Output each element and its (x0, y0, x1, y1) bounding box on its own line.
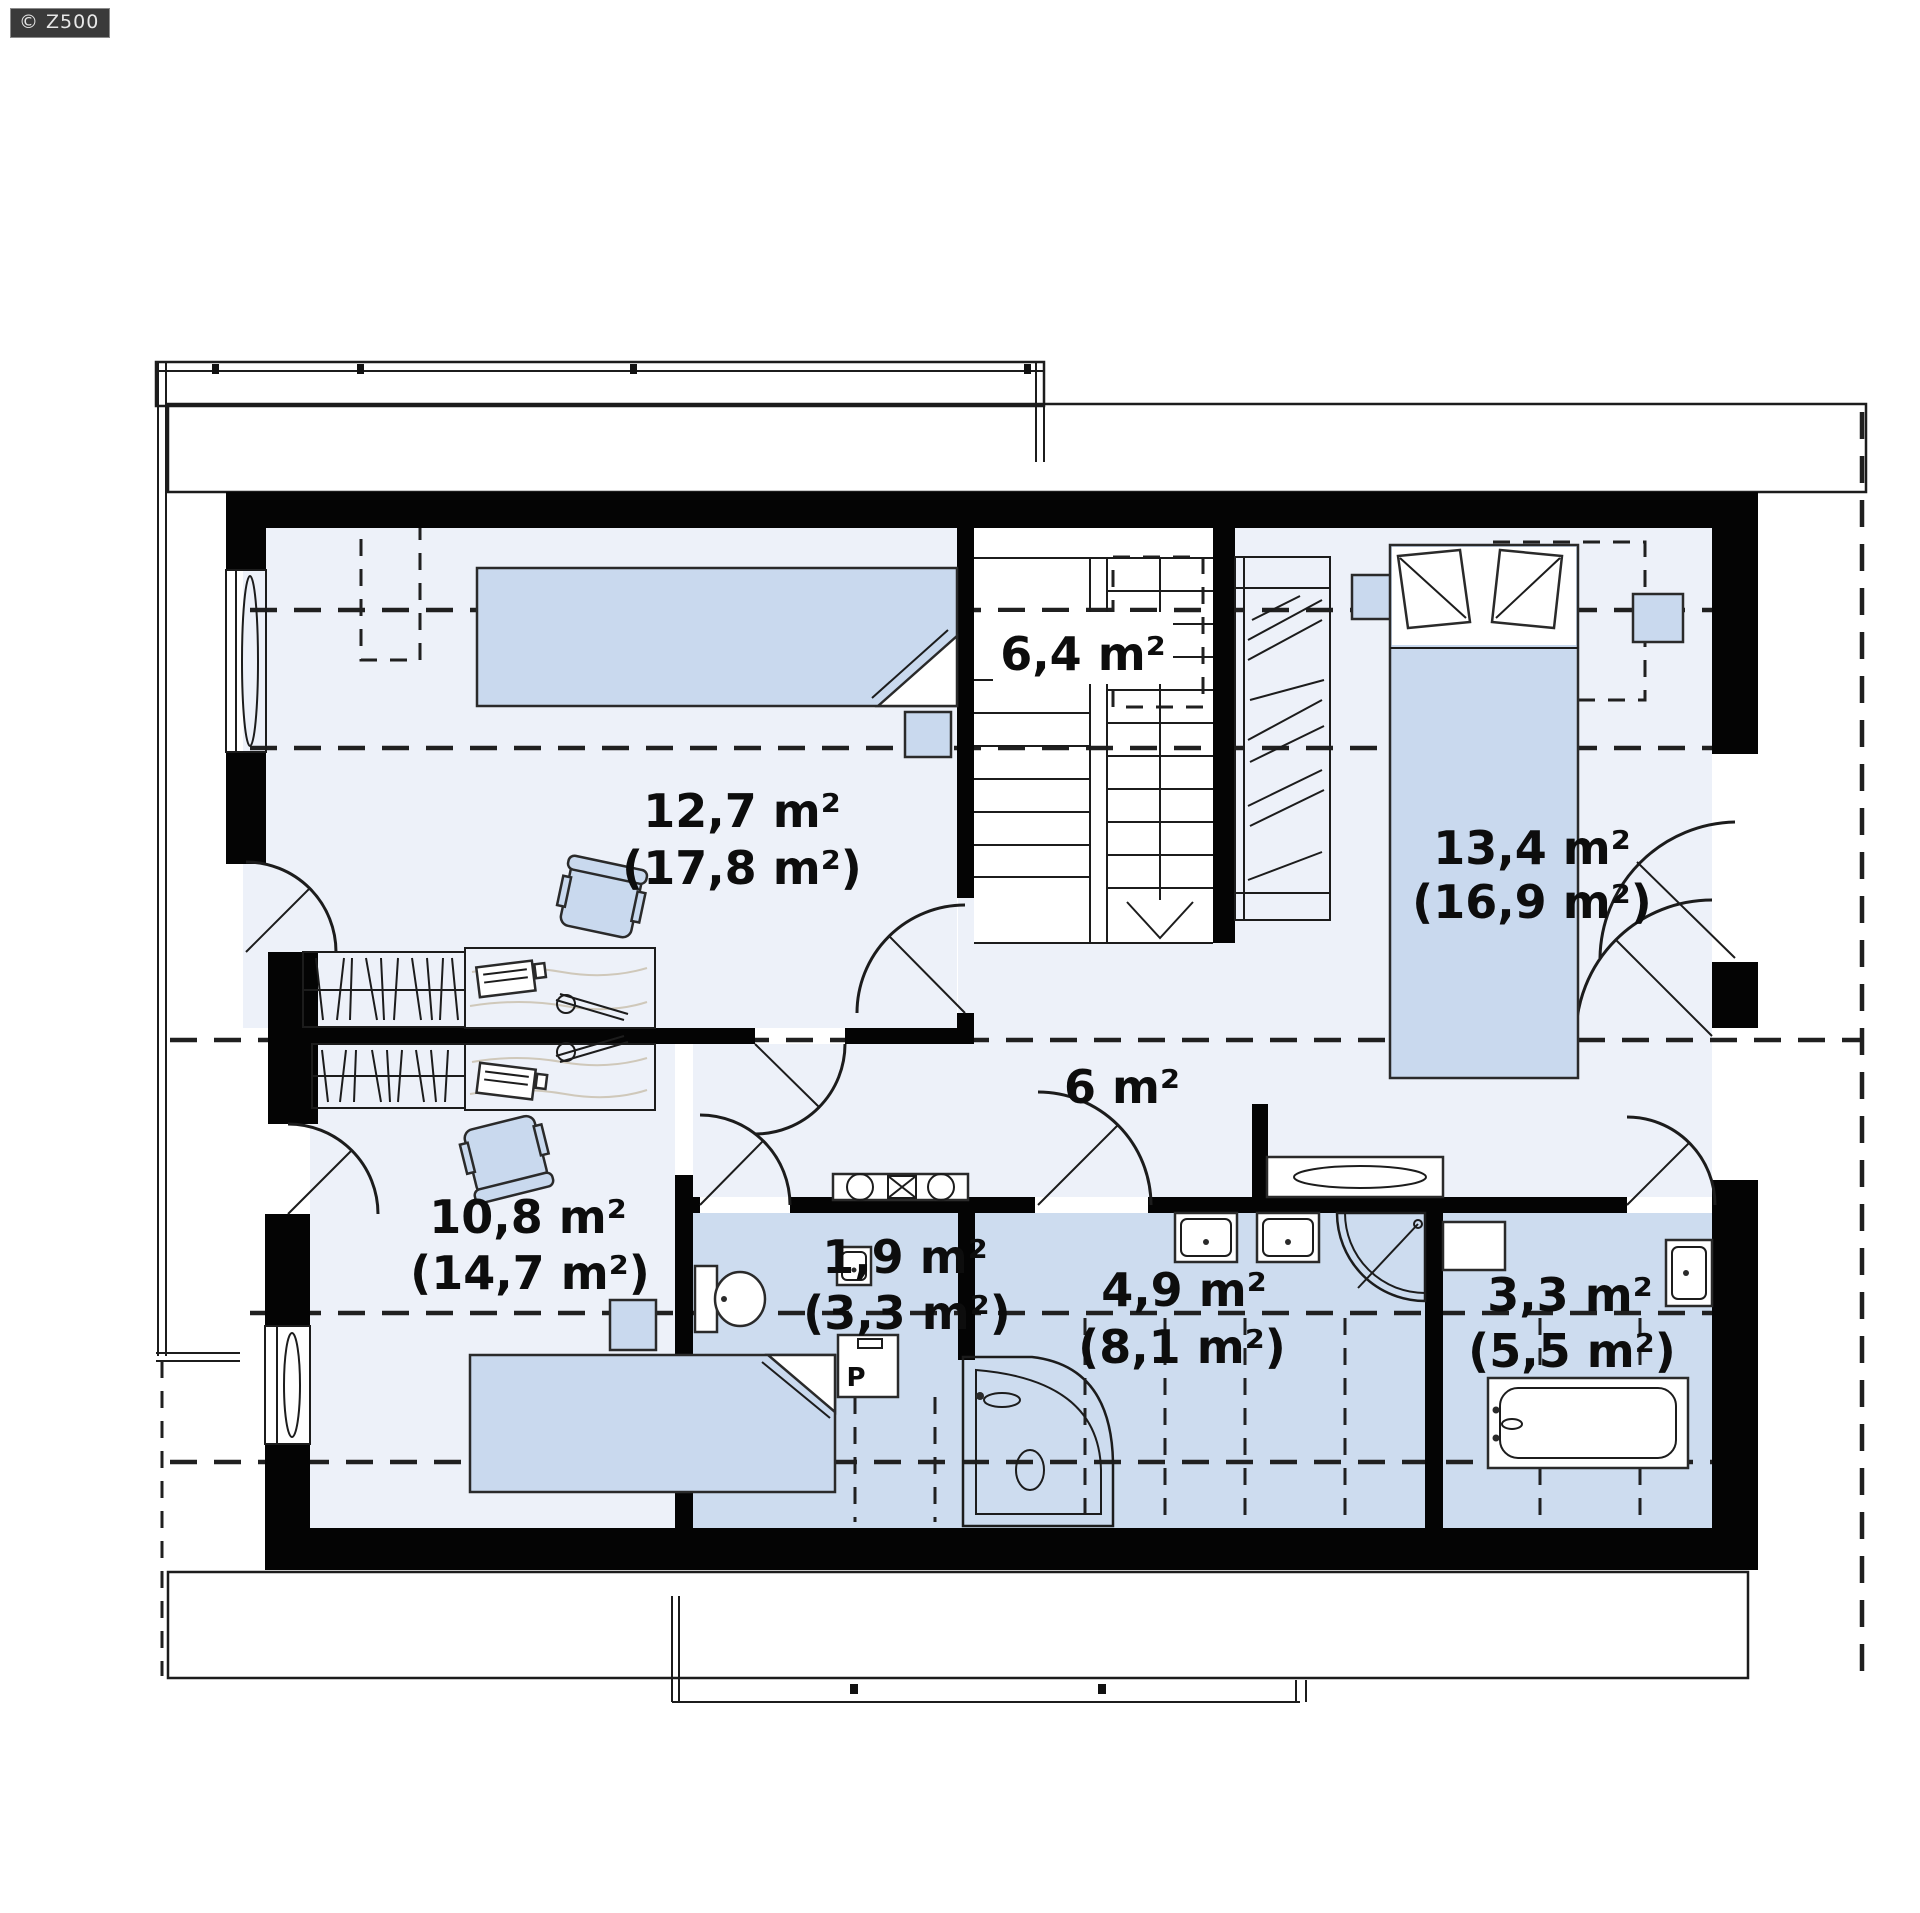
label-bedroom-top-left: 12,7 m² (643, 784, 841, 838)
label-bedroom-bottom-left: 10,8 m² (429, 1190, 627, 1244)
roof-band-bottom (168, 1572, 1748, 1678)
wall-room-divider-a (268, 1028, 755, 1044)
svg-text:P: P (846, 1363, 865, 1393)
bed-single-2 (470, 1355, 835, 1492)
wall-east-upper (1712, 528, 1758, 754)
nightstand-left (1352, 575, 1392, 619)
wall-north (226, 492, 1758, 528)
label-wc: 1,9 m² (822, 1230, 988, 1284)
label-bedroom-bottom-left-2: (14,7 m²) (410, 1246, 650, 1300)
washing-machine: P (838, 1335, 898, 1397)
wall-corridor-east (1252, 1104, 1268, 1212)
wall-west-c (265, 1214, 310, 1326)
toilet (695, 1266, 765, 1332)
label-bathroom-small: 3,3 m² (1487, 1268, 1653, 1322)
dormer-fascia-top (156, 362, 1044, 462)
wall-bath-divider (1425, 1197, 1443, 1528)
label-staircase: 6,4 m² (1000, 627, 1166, 681)
nightstand (905, 712, 951, 757)
bathtub (1488, 1378, 1688, 1468)
wall-stairwell-east (1213, 528, 1235, 943)
bed-double (1390, 545, 1578, 1078)
wall-wc-top-a (693, 1197, 700, 1213)
window-bottom-left (265, 1326, 310, 1444)
cabinet (1443, 1222, 1505, 1270)
wall-east-lower (1712, 1180, 1758, 1570)
wall-room-divider-b (845, 1028, 973, 1044)
sink-double-left (1175, 1213, 1237, 1262)
nightstand (610, 1300, 656, 1350)
furniture-hallway (833, 1174, 968, 1200)
console-with-basins (833, 1174, 968, 1200)
wall-stairwell-west (957, 528, 974, 898)
label-bathroom-main: 4,9 m² (1101, 1263, 1267, 1317)
wall-west-b (226, 752, 266, 864)
nightstand-right (1633, 594, 1683, 642)
wall-bath-small-top (1443, 1197, 1627, 1213)
floor-plan-drawing: P (0, 0, 1920, 1913)
wall-east-stub (1712, 962, 1758, 1028)
floor-plan-page: © Z500 (0, 0, 1920, 1913)
label-bathroom-main-2: (8,1 m²) (1078, 1320, 1286, 1374)
wall-south (265, 1528, 1758, 1570)
roof-band-top (168, 404, 1866, 492)
dresser (1267, 1157, 1443, 1197)
wall-west-a (226, 492, 266, 570)
label-bedroom-top-left-2: (17,8 m²) (622, 841, 862, 895)
wall-bath-top (1148, 1197, 1425, 1213)
sink-wall-east (1666, 1240, 1712, 1306)
dormer-fascia-bottom (672, 1596, 1306, 1702)
sink-double-right (1257, 1213, 1319, 1262)
label-wc-2: (3,3 m²) (803, 1286, 1011, 1340)
label-bedroom-right-2: (16,9 m²) (1412, 875, 1652, 929)
label-bathroom-small-2: (5,5 m²) (1468, 1324, 1676, 1378)
label-bedroom-right: 13,4 m² (1433, 821, 1631, 875)
label-hallway: 6 m² (1064, 1060, 1180, 1114)
